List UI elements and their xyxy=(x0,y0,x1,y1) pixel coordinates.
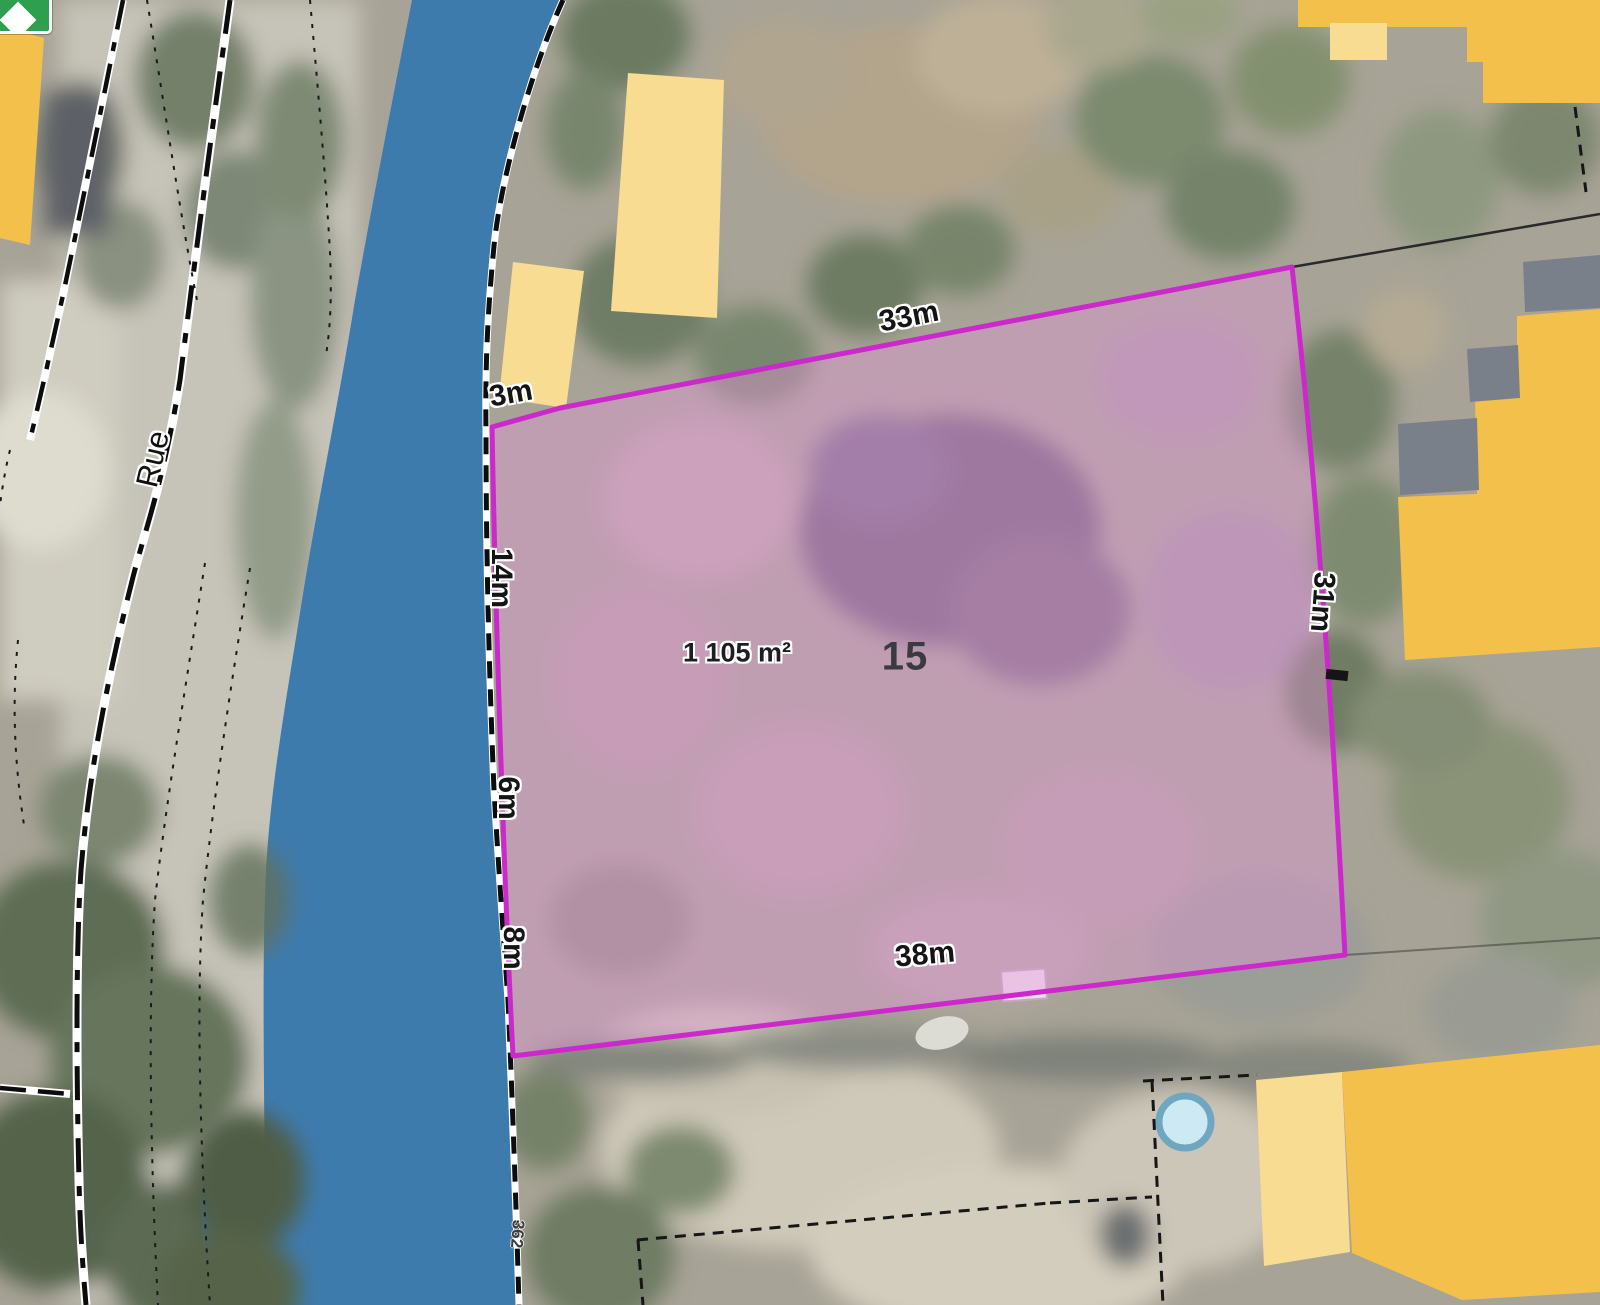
map-layers xyxy=(0,0,1600,1305)
building xyxy=(1256,1072,1350,1266)
building xyxy=(0,26,44,245)
selected-parcel-polygon[interactable] xyxy=(492,267,1345,1056)
roof xyxy=(1467,345,1520,402)
building xyxy=(1342,1045,1600,1300)
poi-marker-icon xyxy=(0,0,52,34)
building xyxy=(1330,23,1387,60)
swimming-pool xyxy=(1159,1096,1211,1148)
map-canvas[interactable]: 3m 33m 31m 38m 14m 6m 8m 1 105 m² 15 Rue… xyxy=(0,0,1600,1305)
roof xyxy=(1523,255,1600,312)
building xyxy=(499,262,584,408)
roof xyxy=(1398,418,1479,495)
building xyxy=(611,73,724,318)
